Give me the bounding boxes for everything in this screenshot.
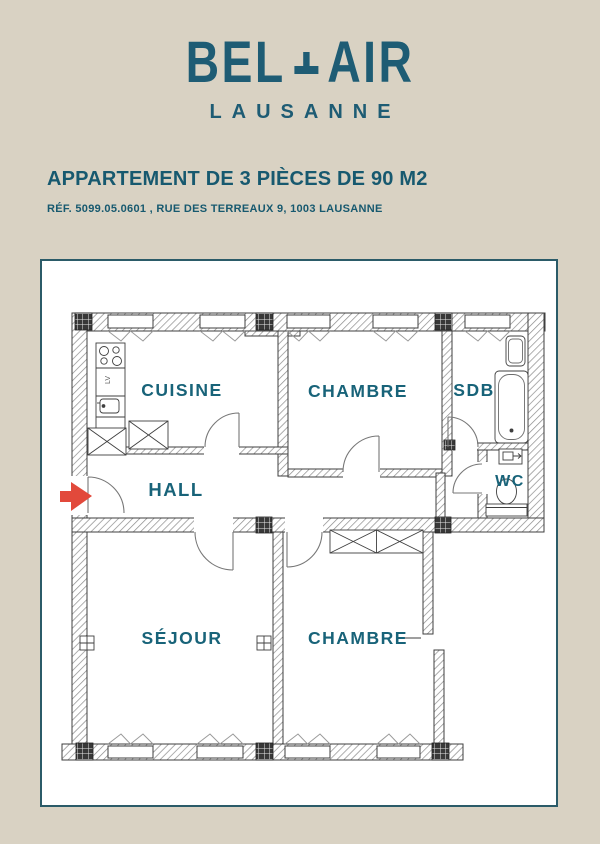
pillar bbox=[435, 313, 452, 330]
door-opening bbox=[204, 446, 239, 455]
wall bbox=[528, 313, 544, 531]
wall bbox=[72, 313, 87, 760]
window bbox=[377, 746, 420, 758]
pillar bbox=[256, 313, 273, 330]
window bbox=[285, 746, 330, 758]
entrance-door bbox=[88, 477, 124, 513]
kitchen-door bbox=[205, 413, 239, 447]
room-label-cuisine: CUISINE bbox=[141, 380, 222, 400]
column-mark bbox=[257, 636, 271, 650]
bedroom1-door bbox=[343, 436, 379, 472]
page: BEL AIR LAUSANNE APPARTEMENT DE 3 PIÈCES… bbox=[0, 0, 600, 844]
living-room-door bbox=[195, 532, 233, 570]
pillar bbox=[75, 313, 92, 330]
column-mark bbox=[80, 636, 94, 650]
brand-logo: BEL AIR bbox=[60, 34, 540, 92]
kitchen-sink-icon bbox=[97, 399, 119, 413]
tower-glyph-icon bbox=[294, 52, 318, 74]
door-opening bbox=[194, 517, 233, 533]
window bbox=[287, 315, 330, 328]
bedroom2-door bbox=[287, 532, 322, 567]
brand-city: LAUSANNE bbox=[0, 101, 600, 124]
brand-header: BEL AIR LAUSANNE bbox=[0, 34, 600, 124]
window bbox=[197, 746, 243, 758]
pillar bbox=[435, 517, 451, 533]
pillar bbox=[432, 743, 449, 760]
window bbox=[465, 315, 510, 328]
room-label-wc: WC bbox=[495, 473, 525, 490]
floorplan-panel: CUISINE CHAMBRE SDB HALL WC SÉJOUR CHAMB… bbox=[40, 259, 558, 807]
brand-name-right: AIR bbox=[327, 34, 414, 92]
brand-name-left: BEL bbox=[186, 34, 286, 92]
cabinet-icon bbox=[129, 421, 168, 449]
bathtub-icon bbox=[495, 371, 528, 443]
room-label-chambre-1: CHAMBRE bbox=[308, 381, 408, 401]
dishwasher-label: LV bbox=[105, 376, 112, 384]
room-label-hall: HALL bbox=[148, 479, 203, 500]
wc-sink-icon bbox=[499, 449, 522, 464]
door-opening bbox=[452, 442, 477, 451]
pillar bbox=[444, 440, 455, 450]
listing-title: APPARTEMENT DE 3 PIÈCES DE 90 M2 bbox=[47, 168, 567, 191]
room-label-chambre-2: CHAMBRE bbox=[308, 628, 408, 648]
wall bbox=[273, 532, 283, 744]
pillar bbox=[76, 743, 93, 760]
wall bbox=[434, 650, 444, 744]
pillar bbox=[256, 517, 272, 533]
room-label-sejour: SÉJOUR bbox=[142, 627, 223, 648]
pillar bbox=[256, 743, 273, 760]
room-label-sdb: SDB bbox=[453, 380, 494, 400]
window bbox=[373, 315, 418, 328]
wall bbox=[423, 532, 433, 634]
window bbox=[108, 315, 153, 328]
room-labels-group: CUISINE CHAMBRE SDB HALL WC SÉJOUR CHAMB… bbox=[105, 376, 525, 648]
wall bbox=[436, 473, 445, 518]
wall bbox=[442, 331, 452, 476]
cabinet-icon bbox=[88, 428, 126, 455]
door-opening bbox=[343, 468, 380, 478]
window bbox=[200, 315, 245, 328]
floor-plan: CUISINE CHAMBRE SDB HALL WC SÉJOUR CHAMB… bbox=[60, 311, 556, 771]
washbasin-icon bbox=[506, 336, 525, 366]
closet-icon bbox=[330, 530, 423, 553]
listing-reference: RÉF. 5099.05.0601 , RUE DES TERREAUX 9, … bbox=[47, 203, 567, 215]
window bbox=[108, 746, 153, 758]
door-opening bbox=[477, 462, 488, 494]
door-opening bbox=[285, 517, 323, 533]
kitchen-counter bbox=[96, 343, 125, 431]
